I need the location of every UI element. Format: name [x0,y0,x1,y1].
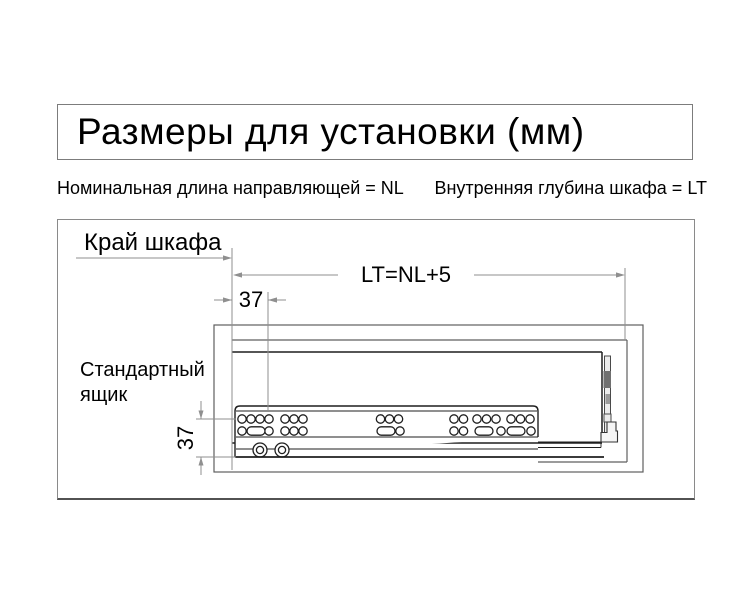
standard-drawer-label-line2: ящик [80,383,205,408]
standard-drawer-label-line1: Стандартный [80,358,205,383]
legend-row: Номинальная длина направляющей = NL Внут… [57,178,707,199]
rear-bracket [601,356,618,442]
depth-dimension-label: LT=NL+5 [338,262,474,288]
title-box: Размеры для установки (мм) [57,104,693,160]
front-offset-dimension-label: 37 [234,287,268,313]
legend-nominal-length: Номинальная длина направляющей = NL [57,178,404,199]
cabinet-edge-label: Край шкафа [84,229,221,257]
legend-inner-depth: Внутренняя глубина шкафа = LT [434,178,707,199]
slide-rail [235,406,604,457]
bottom-offset-dimension-label: 37 [173,416,201,460]
standard-drawer-label: Стандартный ящик [80,358,205,408]
technical-drawing [0,0,750,600]
page-title: Размеры для установки (мм) [77,111,585,153]
